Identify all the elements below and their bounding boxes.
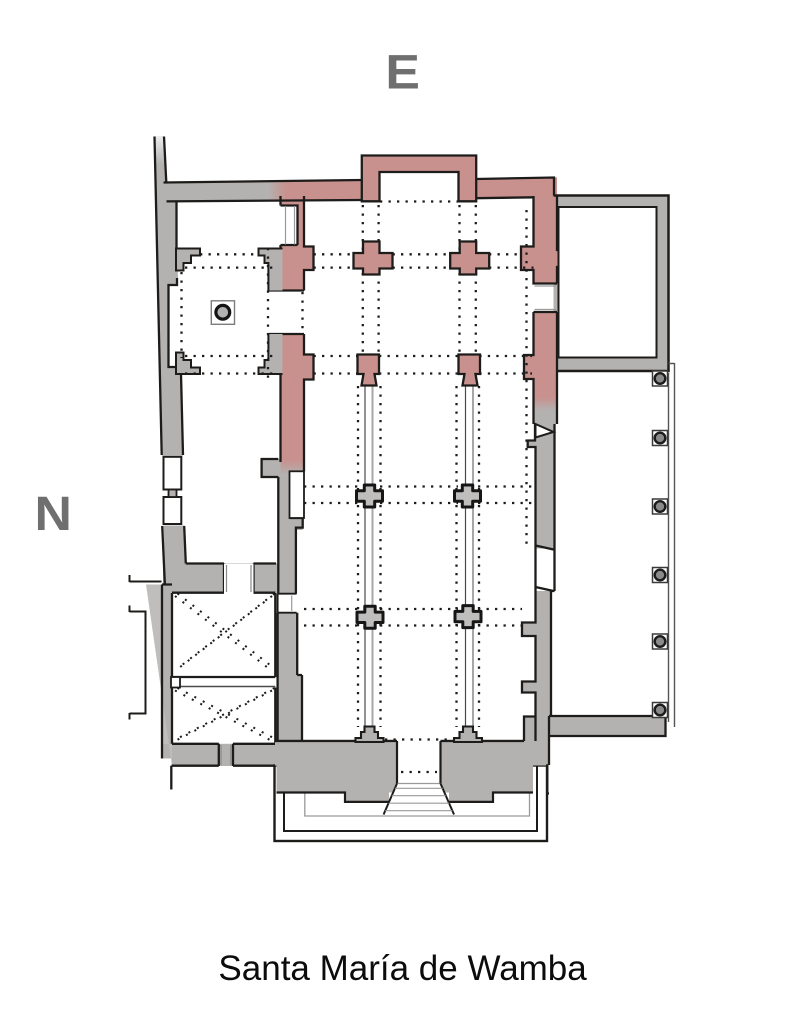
svg-text:E: E [385, 45, 420, 99]
svg-text:N: N [34, 487, 71, 541]
svg-text:Santa María de Wamba: Santa María de Wamba [218, 949, 587, 988]
